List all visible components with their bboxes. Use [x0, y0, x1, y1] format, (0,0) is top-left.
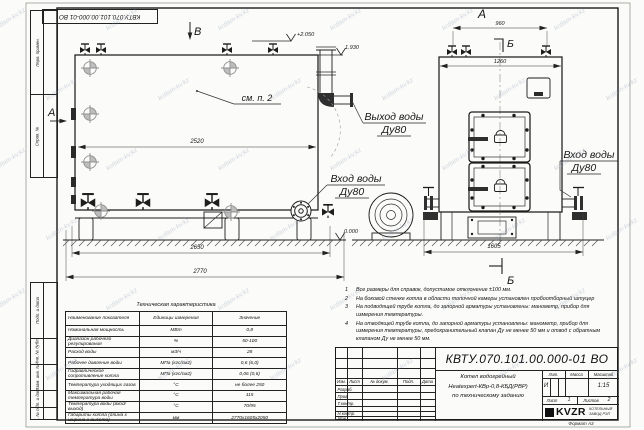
svg-text:Выход воды: Выход воды [364, 111, 423, 123]
title-block: Изм. Лист № докум. Подп. Дата Разраб. Пр… [335, 347, 618, 420]
outlet-pipe [307, 47, 353, 158]
svg-text:960: 960 [495, 21, 505, 27]
tech-table-row: Температура воды (вход/выход)°С70/95 [66, 401, 287, 412]
fan-blower [369, 193, 413, 240]
company-logo: KVZR [545, 406, 586, 418]
margin-cell-podp-data-2: Подп. и дата [30, 390, 44, 408]
note-item: 1Все размеры для справок, допустимое отк… [345, 287, 603, 295]
boiler-body-front [439, 57, 562, 212]
tech-table-row: Номинальная мощностьМВт0,8 [66, 326, 287, 337]
valve-icon [447, 46, 457, 57]
format-label: Формат А3 [546, 421, 616, 426]
margin-cell-empty [43, 390, 58, 408]
svg-text:0.000: 0.000 [344, 229, 359, 235]
tech-table-row: Рабочее давление водыМПа (кгс/см2)0,6 (6… [66, 358, 287, 369]
margin-cell-empty [43, 407, 58, 420]
svg-text:2770: 2770 [192, 269, 207, 275]
description-line2: Heatexpert-КВр-0,8-КБД(РВР) [448, 384, 527, 390]
lift-point-icon [81, 153, 99, 171]
svg-text:Ду80: Ду80 [339, 186, 365, 198]
valve-icon [81, 194, 96, 210]
masshtab-value: 1:15 [598, 383, 610, 389]
svg-text:2520: 2520 [189, 139, 204, 145]
svg-text:В: В [194, 26, 201, 38]
margin-cell-empty [43, 338, 58, 365]
section-mark-B-top: Б [494, 38, 514, 52]
door-latch-icon [496, 180, 505, 185]
col-izm: Изм. [337, 379, 346, 384]
drain-valve-icon [322, 205, 334, 218]
margin-cell-empty [43, 364, 58, 391]
stamp-top: КВТУ.070.101.00.000-01 ВО [42, 9, 158, 24]
margin-cell-vzam-inv: Взам. инв. № [30, 364, 44, 391]
list-label: Лист [547, 398, 558, 403]
valve-icon [136, 194, 151, 210]
svg-text:Б: Б [507, 275, 514, 287]
view-letter-B: В [188, 22, 202, 40]
tech-table-row: Температура уходящих газов°Сне более 250 [66, 380, 287, 391]
lift-point-icon [81, 59, 99, 77]
row-razrab: Разраб. [338, 387, 353, 392]
note-item: 2На боковой стенке котла в области топоч… [345, 296, 603, 304]
logo-mark-icon [545, 408, 554, 417]
tech-table: Наименование показателя Единицы измерени… [65, 311, 287, 424]
margin-cell-empty [43, 94, 58, 178]
drawing-sheet: kotlam-kv.kzkotlam-kv.kzkotlam-kv.kzkotl… [0, 0, 644, 430]
boiler-body-side [75, 55, 318, 210]
view-letter-A-front: А [477, 7, 486, 21]
front-view: 1260 960 1605 А Б [352, 7, 618, 287]
listov-value: 2 [608, 397, 611, 403]
level-mark-2050: +2.050 [252, 32, 315, 41]
margin-cell-podp-data-1: Подп. и дата [30, 282, 44, 339]
lift-point-icon [81, 105, 99, 123]
door-latch-icon [496, 131, 505, 136]
valve-icon [205, 194, 220, 210]
svg-text:+2.050: +2.050 [297, 32, 315, 38]
lower-door [468, 163, 530, 211]
see-note-label: см. п. 2 [196, 90, 281, 104]
col-data: Дата [422, 379, 433, 384]
col-list: Лист [349, 379, 360, 384]
svg-text:Б: Б [507, 38, 514, 50]
label-water-outlet: Выход воды Ду80 [352, 101, 426, 136]
tech-table-row: Габариты котла (длина х ширина х высота)… [66, 413, 287, 424]
margin-cell-empty [43, 282, 58, 339]
svg-text:см. п. 2: см. п. 2 [242, 93, 273, 103]
masshtab-header: Масштаб [594, 372, 614, 377]
side-view: 2520 2650 2770 В А [47, 22, 426, 281]
tech-table-header: Наименование показателя Единицы измерени… [66, 312, 287, 326]
valve-icon [96, 44, 106, 55]
description-line1: Котел водогрейный [460, 374, 515, 380]
valve-icon [80, 44, 90, 55]
tech-table-row: Максимальная рабочая температура воды°С1… [66, 390, 287, 401]
col-podp: Подп. [403, 379, 414, 384]
svg-text:Вход воды: Вход воды [564, 149, 615, 161]
dim-2520: 2520 [78, 139, 316, 149]
dim-960: 960 [453, 21, 547, 45]
col-docum: № докум. [370, 379, 388, 384]
section-mark-B-bottom: Б [489, 258, 514, 287]
massa-header: Масса [570, 372, 582, 377]
note-item: 4На отводящей трубе котла, до запорной а… [345, 321, 603, 344]
svg-text:Вход воды: Вход воды [331, 173, 382, 185]
margin-cell-inv-podl: Инв. № подл. [30, 407, 44, 420]
margin-cell-inv-dubl: Инв. № дубл. [30, 338, 44, 365]
svg-text:Ду80: Ду80 [381, 124, 407, 136]
valve-icon [541, 46, 551, 57]
margin-cell-perv-primen: Перв. примен. [30, 10, 44, 95]
dim-2770: 2770 [66, 230, 344, 281]
lit-header: Лит. [549, 372, 559, 377]
svg-text:2650: 2650 [189, 245, 204, 251]
description-line3: по техническому заданию [452, 393, 524, 399]
margin-cell-empty [43, 10, 58, 95]
upper-door [468, 112, 530, 162]
lit-value: И [544, 383, 548, 389]
svg-text:Ду80: Ду80 [571, 162, 597, 174]
tech-table-row: Гидравлическое сопротивление котлаМПа (к… [66, 369, 287, 380]
tech-table-row: Расход водым3/ч28 [66, 347, 287, 358]
level-mark-0000: 0.000 [336, 229, 359, 240]
valve-icon [268, 44, 278, 55]
tech-table-title: Техническая характеристика [65, 302, 287, 308]
tech-table-row: Диапазон рабочего регулирования%50-100 [66, 336, 287, 347]
list-value: 1 [568, 397, 571, 403]
dim-1605: 1605 [424, 214, 583, 256]
dim-1260: 1260 [440, 59, 561, 68]
note-item: 3На подводящей трубе котла, до запорной … [345, 304, 603, 319]
svg-text:1.930: 1.930 [345, 45, 360, 51]
boiler-foot [225, 218, 239, 240]
label-water-inlet-side: Вход воды Ду80 [308, 173, 385, 204]
valve-icon [461, 46, 471, 57]
side-fitting-left [423, 188, 439, 221]
notes: 1Все размеры для справок, допустимое отк… [345, 287, 603, 345]
label-water-inlet-front: Вход воды Ду80 [560, 149, 618, 197]
lift-point-icon [221, 59, 239, 77]
door-handle-bar [468, 187, 488, 191]
boiler-foot [79, 218, 93, 240]
doc-number: КВТУ.070.101.00.000-01 ВО [446, 352, 609, 366]
svg-text:1260: 1260 [494, 59, 507, 65]
door-handle-bar [468, 137, 488, 141]
listov-label: Листов [583, 398, 598, 403]
stamp-doc-number: КВТУ.070.101.00.000-01 ВО [59, 13, 140, 20]
ash-door [468, 217, 516, 238]
row-utv: Утв. [338, 416, 348, 421]
valve-icon [222, 44, 232, 55]
row-tkontr: Т.контр. [338, 401, 355, 406]
row-prov: Пров. [338, 394, 349, 399]
ground-hatch-right [352, 240, 598, 246]
boiler-base-front [441, 212, 560, 240]
company-name: КОТЕЛЬНЫЙ ЗАВОД РЭП [589, 407, 612, 417]
margin-cell-sprav-no: Справ. № [30, 94, 44, 178]
